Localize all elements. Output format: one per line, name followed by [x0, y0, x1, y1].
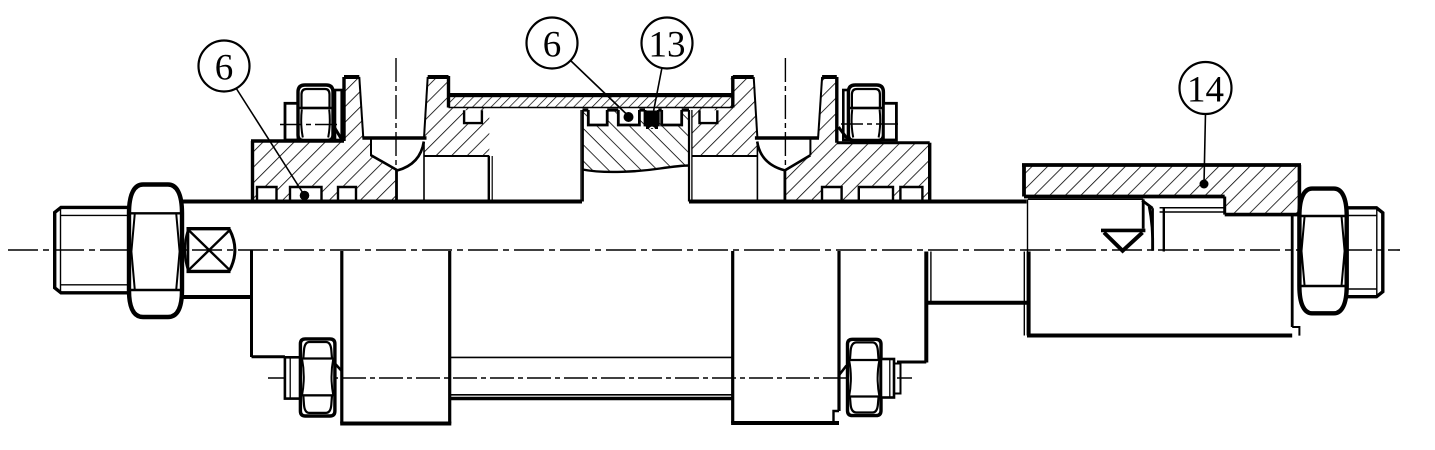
- svg-text:14: 14: [1187, 70, 1224, 111]
- svg-text:13: 13: [649, 25, 686, 66]
- svg-text:6: 6: [543, 25, 562, 66]
- svg-text:6: 6: [215, 48, 234, 89]
